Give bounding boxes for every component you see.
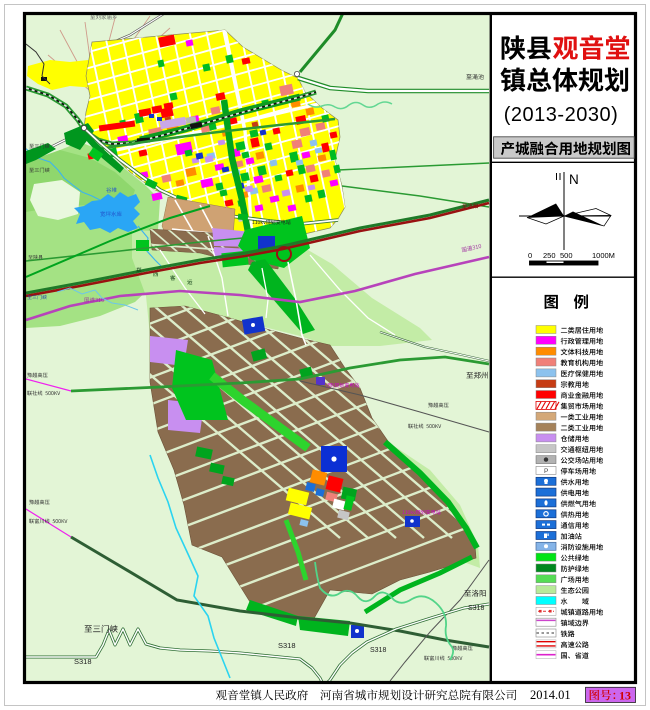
svg-text:0: 0: [528, 251, 532, 260]
svg-text:(2013-2030): (2013-2030): [504, 104, 618, 126]
svg-text:13: 13: [619, 688, 631, 702]
svg-text:S318: S318: [74, 657, 92, 666]
svg-text:P: P: [544, 468, 548, 475]
svg-text:N: N: [569, 172, 579, 187]
svg-text:S318: S318: [278, 641, 296, 650]
svg-text:2014.01: 2014.01: [530, 688, 571, 702]
svg-text:S318: S318: [468, 605, 484, 612]
svg-text:1000M: 1000M: [592, 251, 615, 260]
svg-text:500: 500: [560, 251, 573, 260]
svg-text:250: 250: [543, 251, 556, 260]
svg-text:S318: S318: [370, 647, 386, 654]
